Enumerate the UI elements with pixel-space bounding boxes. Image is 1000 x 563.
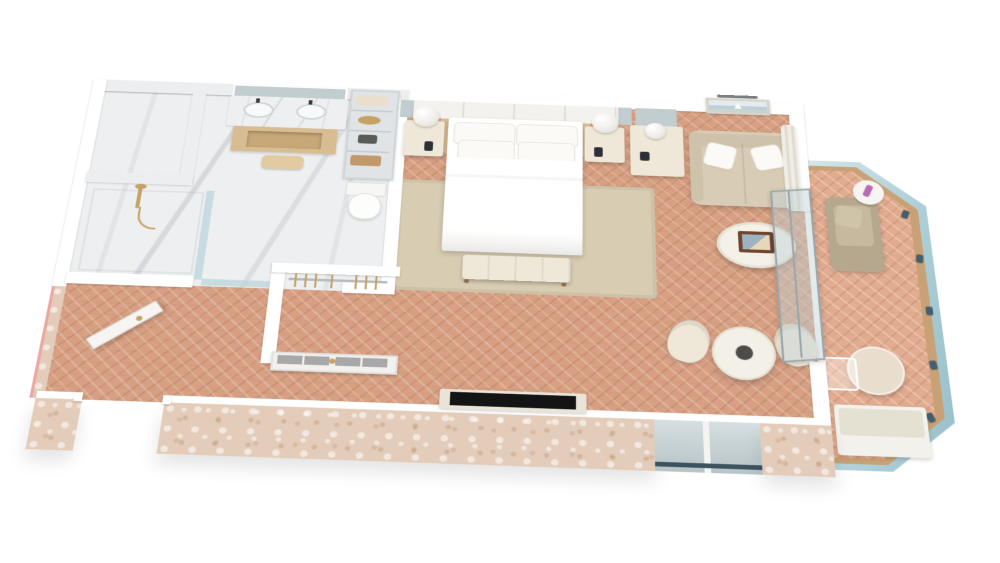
vanity-faucet [256, 98, 260, 102]
balustrade-clamp [925, 306, 933, 315]
closet-door-knobs [329, 358, 336, 363]
towel-stack [355, 95, 388, 106]
accessory-on-nightstand [594, 147, 603, 157]
phone-on-nightstand [424, 141, 433, 151]
closet-door-pane [277, 354, 303, 364]
headboard-mirror-left [400, 99, 414, 117]
dark-accessory [358, 134, 378, 143]
entry-door-handle [136, 315, 143, 320]
gold-bowl [357, 115, 380, 124]
woven-basket [350, 154, 382, 166]
vanity-stool [261, 154, 305, 169]
bench-leg [464, 278, 469, 282]
shower-tray [77, 188, 204, 274]
entry-jamb-left [73, 392, 83, 401]
closet-door-pane [304, 355, 330, 365]
entry-jamb-right [162, 395, 172, 404]
desk-phone [640, 151, 650, 160]
balustrade-clamp [916, 254, 923, 263]
suite-floorplan [8, 74, 968, 491]
globe-lamp-left [412, 106, 440, 127]
closet-door-pane [362, 357, 388, 367]
toilet-bowl [347, 192, 383, 219]
vanity-open-shelf [246, 130, 322, 149]
sailboat [734, 102, 742, 109]
closet-door-pane [335, 356, 361, 366]
bed-bench [462, 254, 571, 282]
bench-leg [561, 282, 566, 286]
floorplan-render-canvas [0, 0, 1000, 563]
tray-art-book [742, 234, 771, 250]
balcony-settee-cushion [838, 407, 925, 437]
bed-duvet [441, 156, 582, 255]
bottom-wall-left [25, 397, 82, 450]
headboard-mirror-right [618, 107, 631, 125]
bottom-wall-right [760, 423, 836, 477]
vanity-faucet [308, 100, 312, 104]
hand-shower-head [135, 183, 148, 189]
